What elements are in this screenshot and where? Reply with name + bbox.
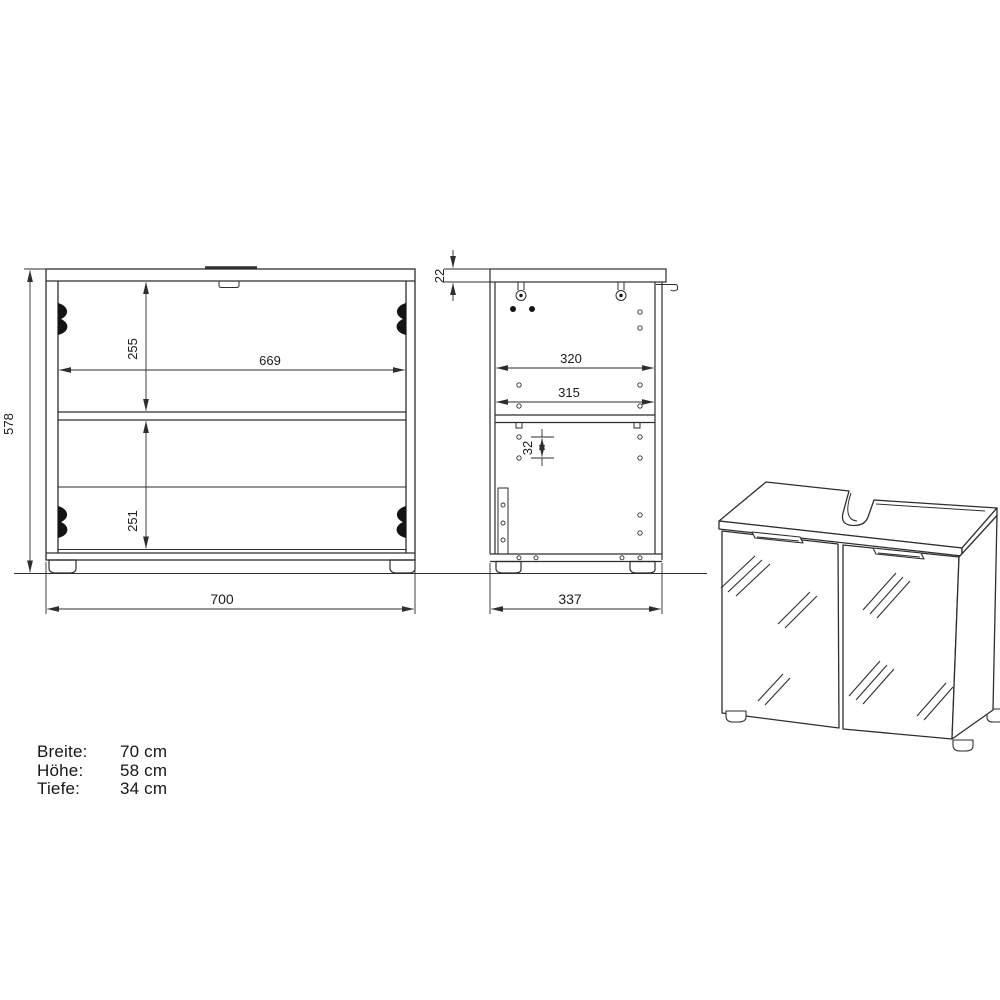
side-front-wall — [490, 282, 495, 554]
right-door-3d — [843, 545, 959, 739]
hinge-icon-top-right — [397, 303, 406, 335]
cutout-inner-edge — [848, 493, 857, 521]
side-foot-back — [630, 562, 655, 574]
side-foot-front — [496, 562, 521, 574]
technical-drawing: 578 255 251 669 700 — [0, 0, 1000, 1000]
spec-row-width: Breite: 70 cm — [37, 743, 167, 762]
dowel-dot-2 — [529, 306, 535, 312]
front-upper-compartment-dim-label: 255 — [125, 338, 140, 360]
hinge-icon-top-left — [58, 303, 67, 335]
spec-value-height: 58 cm — [120, 762, 167, 781]
dimensions-summary: Breite: 70 cm Höhe: 58 cm Tiefe: 34 cm — [37, 743, 167, 799]
product-3d-view — [719, 482, 1000, 751]
left-door-3d — [722, 531, 839, 728]
shelf-pin-back — [634, 423, 640, 429]
side-shelf — [495, 415, 655, 423]
front-outline — [46, 269, 415, 560]
front-foot-left — [49, 560, 76, 573]
side-view-dimensions — [444, 250, 662, 614]
hinge-icon-bottom-right — [397, 506, 406, 538]
side-inner-depth-lower-dim-label: 315 — [558, 385, 580, 400]
side-back-panel — [655, 282, 662, 560]
shelf-pin-front — [516, 423, 522, 429]
side-depth-dim-label: 337 — [558, 591, 582, 607]
front-siphon-cutout-tab — [219, 281, 239, 288]
hinge-icon-bottom-left — [58, 506, 67, 538]
front-height-dim-label: 578 — [1, 413, 16, 435]
dowel-dot-1 — [510, 306, 516, 312]
ext-lines-22 — [444, 269, 490, 282]
spec-row-depth: Tiefe: 34 cm — [37, 780, 167, 799]
spec-label-height: Höhe: — [37, 762, 115, 781]
hanger-stem-back — [618, 282, 624, 290]
system-holes — [517, 310, 642, 560]
front-lower-compartment-dim-label: 251 — [125, 510, 140, 532]
spec-row-height: Höhe: 58 cm — [37, 762, 167, 781]
hanger-fittings — [516, 282, 626, 301]
front-inner-width-dim-label: 669 — [259, 353, 281, 368]
hanger-stem-front — [518, 282, 524, 290]
wall-mount-rail-hook — [656, 285, 678, 291]
spec-value-depth: 34 cm — [120, 780, 167, 799]
front-shelf — [58, 412, 406, 420]
front-foot-right — [390, 560, 415, 573]
front-side-walls — [58, 281, 406, 553]
side-inner-depth-upper-dim-label: 320 — [560, 351, 582, 366]
spec-label-depth: Tiefe: — [37, 780, 115, 799]
foot-3d-left — [726, 711, 746, 722]
side-bottom-panel — [490, 554, 662, 562]
spec-value-width: 70 cm — [120, 743, 167, 762]
side-top-panel — [490, 269, 666, 282]
front-view-dimensions — [24, 269, 415, 614]
side-view: 22 320 315 32 337 — [432, 250, 678, 614]
front-width-dim-label: 700 — [210, 591, 234, 607]
foot-3d-right — [953, 740, 973, 751]
spec-label-width: Breite: — [37, 743, 115, 762]
side-hole-pitch-dim-label: 32 — [520, 441, 535, 455]
side-top-thickness-dim-label: 22 — [432, 269, 447, 283]
